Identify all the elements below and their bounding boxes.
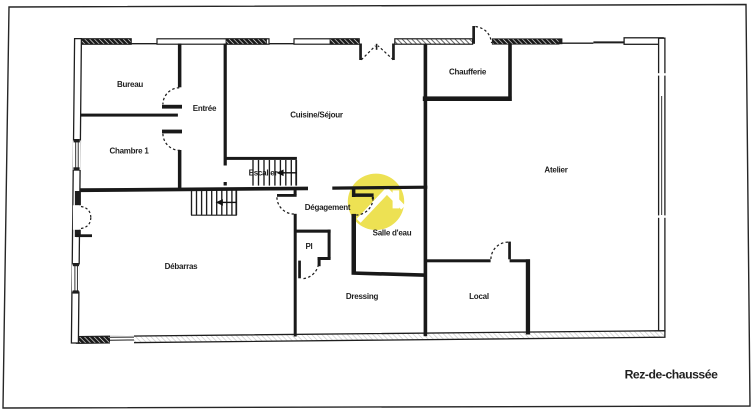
svg-text:Pl: Pl: [305, 242, 312, 251]
svg-text:Cuisine/Séjour: Cuisine/Séjour: [290, 111, 343, 120]
svg-text:Atelier: Atelier: [544, 166, 567, 175]
svg-text:Escalier: Escalier: [249, 169, 278, 178]
svg-text:Salle d'eau: Salle d'eau: [373, 229, 412, 238]
svg-text:Chaufferie: Chaufferie: [449, 67, 487, 76]
svg-text:Dressing: Dressing: [346, 292, 379, 301]
svg-text:Bureau: Bureau: [117, 80, 143, 89]
svg-text:Chambre 1: Chambre 1: [109, 146, 149, 155]
svg-text:Dégagement: Dégagement: [305, 203, 351, 212]
svg-text:Rez-de-chaussée: Rez-de-chaussée: [625, 367, 718, 381]
svg-text:Entrée: Entrée: [193, 104, 217, 113]
svg-text:Débarras: Débarras: [165, 262, 198, 271]
svg-text:Local: Local: [469, 292, 489, 301]
